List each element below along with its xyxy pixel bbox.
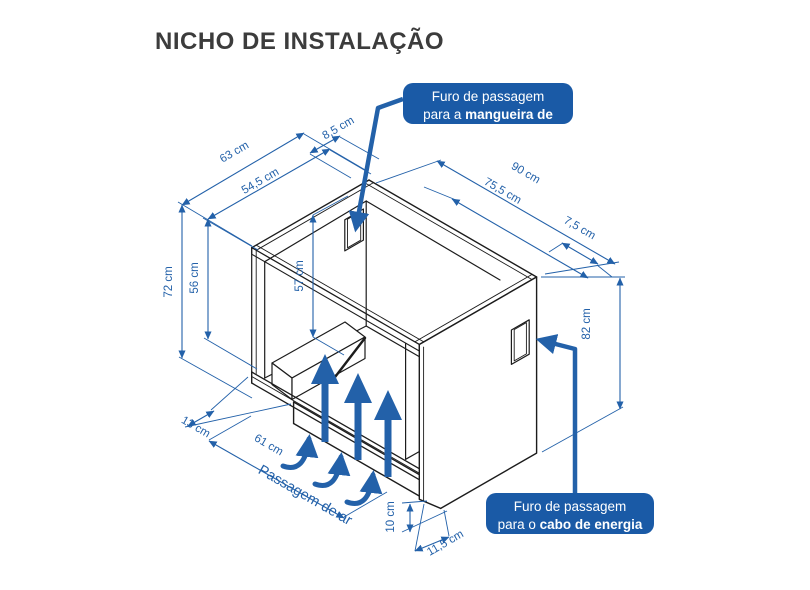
energy-callout-line1: Furo de passagem (514, 499, 627, 514)
niche-structure (252, 180, 537, 508)
gas-callout: Furo de passagem para a mangueira de gás (403, 83, 573, 124)
diagram-canvas: NICHO DE INSTALAÇÃO (0, 0, 810, 590)
dim-height-inner-left-label: 56 cm (189, 262, 201, 293)
energy-callout-connector (540, 340, 575, 494)
dim-back-wall-thickness-label: 8,5 cm (321, 115, 357, 143)
gas-callout-line1: Furo de passagem (432, 89, 545, 104)
dim-depth-outer-label: 63 cm (218, 139, 251, 165)
dim-base-depth-label: 11,5 cm (425, 528, 466, 558)
gas-callout-line2-prefix: para a (423, 107, 465, 122)
energy-callout-line2-prefix: para o (498, 517, 540, 532)
energy-callout-line2-bold: cabo de energia (540, 517, 643, 532)
interior-shelf (272, 322, 365, 400)
energy-callout: Furo de passagem para o cabo de energia (486, 493, 654, 534)
dim-width-inner-label: 75,5 cm (482, 176, 523, 207)
dim-air-opening-width-label: 61 cm (252, 432, 285, 458)
airflow-up-arrows (311, 354, 402, 477)
dim-height-outer-left-label: 72 cm (163, 266, 175, 297)
dim-depth-inner-label: 54,5 cm (240, 166, 281, 197)
dim-air-gap-depth-label: 13 cm (179, 414, 212, 440)
dim-base-height-label: 10 cm (385, 501, 397, 532)
dim-width-outer-label: 90 cm (509, 160, 542, 186)
dim-right-wall-thickness-label: 7,5 cm (562, 215, 598, 243)
dim-height-inner-label: 57 cm (294, 260, 306, 291)
dim-height-outer-right-label: 82 cm (581, 308, 593, 339)
